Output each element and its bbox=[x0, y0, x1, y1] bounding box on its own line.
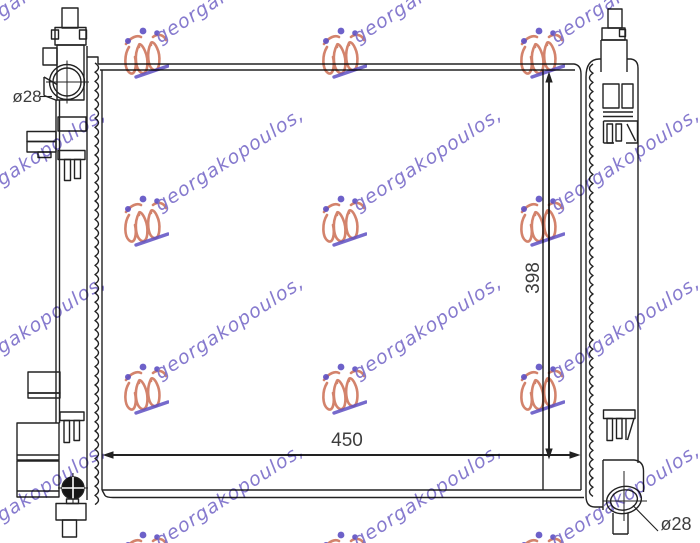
dimension-lines bbox=[103, 72, 581, 460]
drawing-svg bbox=[0, 0, 700, 543]
height-dimension-label: 398 bbox=[524, 258, 544, 298]
radiator-technical-drawing: georgakopoulos,georgakopoulos,georgakopo… bbox=[0, 0, 700, 543]
core-left-crimp bbox=[95, 63, 99, 505]
drain-plug bbox=[56, 473, 88, 537]
right-mount-clips bbox=[603, 84, 638, 441]
overflow-nipple bbox=[601, 9, 627, 72]
left-tank bbox=[56, 46, 98, 500]
core-right-crimp bbox=[590, 64, 594, 496]
inlet-diameter-label: ø28 bbox=[6, 87, 48, 107]
outlet-pipe bbox=[603, 460, 658, 534]
outlet-diameter-label: ø28 bbox=[654, 514, 698, 534]
width-dimension-label: 450 bbox=[317, 431, 377, 451]
